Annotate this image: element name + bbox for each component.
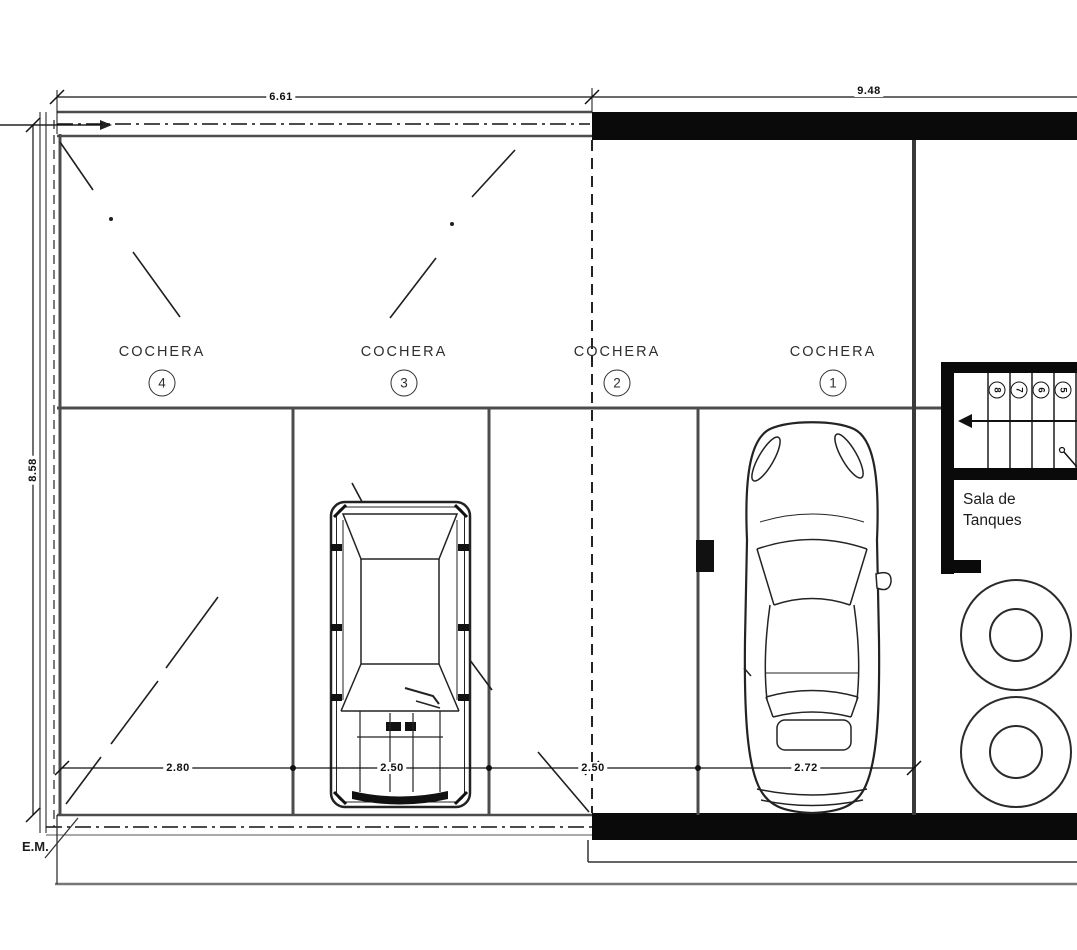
em-label: E.M. [22,839,49,854]
spot-number-cochera-2: 2 [604,370,631,397]
stair-step-number-6: 6 [1033,382,1050,399]
car1-mirror [876,573,891,590]
spot-label-cochera-2: COCHERA [574,344,661,360]
tank-circles [961,580,1071,807]
spot-label-cochera-1: COCHERA [790,344,877,360]
dim-stall-1: 2.72 [791,762,820,774]
dim-left-height: 8.58 [27,455,39,484]
dim-stall-2: 2.50 [578,762,607,774]
dimension-linework [26,88,1077,822]
spot-number-cochera-1: 1 [820,370,847,397]
car-cochera-1 [744,422,891,813]
tank-1-outer [961,580,1071,690]
plan-linework [0,0,1077,950]
stair-step-number-7: 7 [1011,382,1028,399]
diagonal-cross-marks [60,142,589,812]
car1-body [745,422,879,813]
dim-top-left: 6.61 [266,91,295,103]
spot-label-cochera-3: COCHERA [361,344,448,360]
spot-number-cochera-3: 3 [391,370,418,397]
tank-2-outer [961,697,1071,807]
dim-top-right: 9.48 [854,85,883,97]
spot-label-cochera-4: COCHERA [119,344,206,360]
dim-stall-3: 2.50 [377,762,406,774]
black-wall-top [592,112,1077,140]
dim-stall-4: 2.80 [163,762,192,774]
column-pillar [696,540,714,572]
spot-number-cochera-4: 4 [149,370,176,397]
tank-2-inner [990,726,1042,778]
tank-1-inner [990,609,1042,661]
floor-plan: 6.61 9.48 8.58 2.80 2.50 2.50 2.72 COCHE… [0,0,1077,950]
property-lines [0,112,112,833]
stair-step-number-5: 5 [1055,382,1072,399]
tank-room-label: Sala de Tanques [963,489,1022,531]
stair-direction-arrow [958,414,972,428]
dashed-lines [46,124,592,835]
black-wall-bottom [592,813,1077,840]
stair-step-number-8: 8 [989,382,1006,399]
